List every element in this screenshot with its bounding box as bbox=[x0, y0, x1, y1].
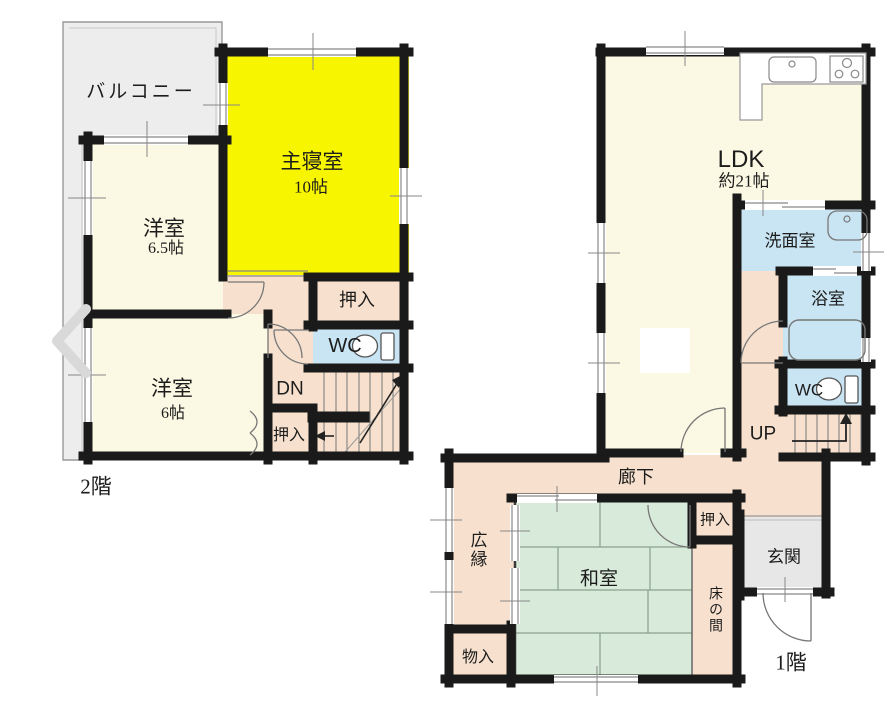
floor2-label: 2階 bbox=[80, 477, 112, 498]
washroom-label: 洗面室 bbox=[765, 233, 816, 250]
floor1-label: 1階 bbox=[775, 653, 807, 674]
tokonoma-label: 床の間 bbox=[707, 586, 721, 634]
floor-plan-drawing bbox=[0, 0, 893, 719]
bathroom-label: 浴室 bbox=[811, 291, 845, 308]
storage-label: 物入 bbox=[462, 650, 494, 666]
western-room-6-size: 6帖 bbox=[161, 406, 185, 422]
closet-label-1f: 押入 bbox=[700, 514, 730, 529]
master-bedroom-size: 10帖 bbox=[294, 179, 328, 196]
sink-icon bbox=[769, 57, 816, 82]
western-room-6-label: 洋室 bbox=[151, 379, 193, 400]
western-room-65-label: 洋室 bbox=[143, 219, 185, 240]
closet-top-label-2f: 押入 bbox=[339, 291, 375, 309]
stairs-up-label: UP bbox=[750, 425, 776, 444]
floor-plan: バルコニー 主寝室 10帖 洋室 6.5帖 洋室 6帖 押入 WC DN 押入 … bbox=[0, 0, 893, 719]
japanese-room-label: 和室 bbox=[580, 570, 618, 589]
entrance-label: 玄関 bbox=[767, 549, 801, 566]
ldk-label: LDK bbox=[718, 148, 765, 172]
wc-label-2f: WC bbox=[328, 336, 361, 356]
room-fills bbox=[63, 22, 866, 683]
stairs-down-label: DN bbox=[276, 380, 303, 399]
western-room-65-size: 6.5帖 bbox=[148, 241, 184, 257]
master-bedroom-label: 主寝室 bbox=[281, 152, 344, 173]
closet-bottom-label-2f: 押入 bbox=[273, 428, 305, 444]
stove-icon bbox=[830, 56, 863, 82]
ldk-size: 約21帖 bbox=[719, 173, 770, 190]
balcony-label: バルコニー bbox=[86, 83, 196, 102]
wc-label-1f: WC bbox=[795, 382, 823, 399]
hallway-label: 廊下 bbox=[618, 468, 654, 486]
veranda-label: 広縁 bbox=[469, 531, 486, 569]
